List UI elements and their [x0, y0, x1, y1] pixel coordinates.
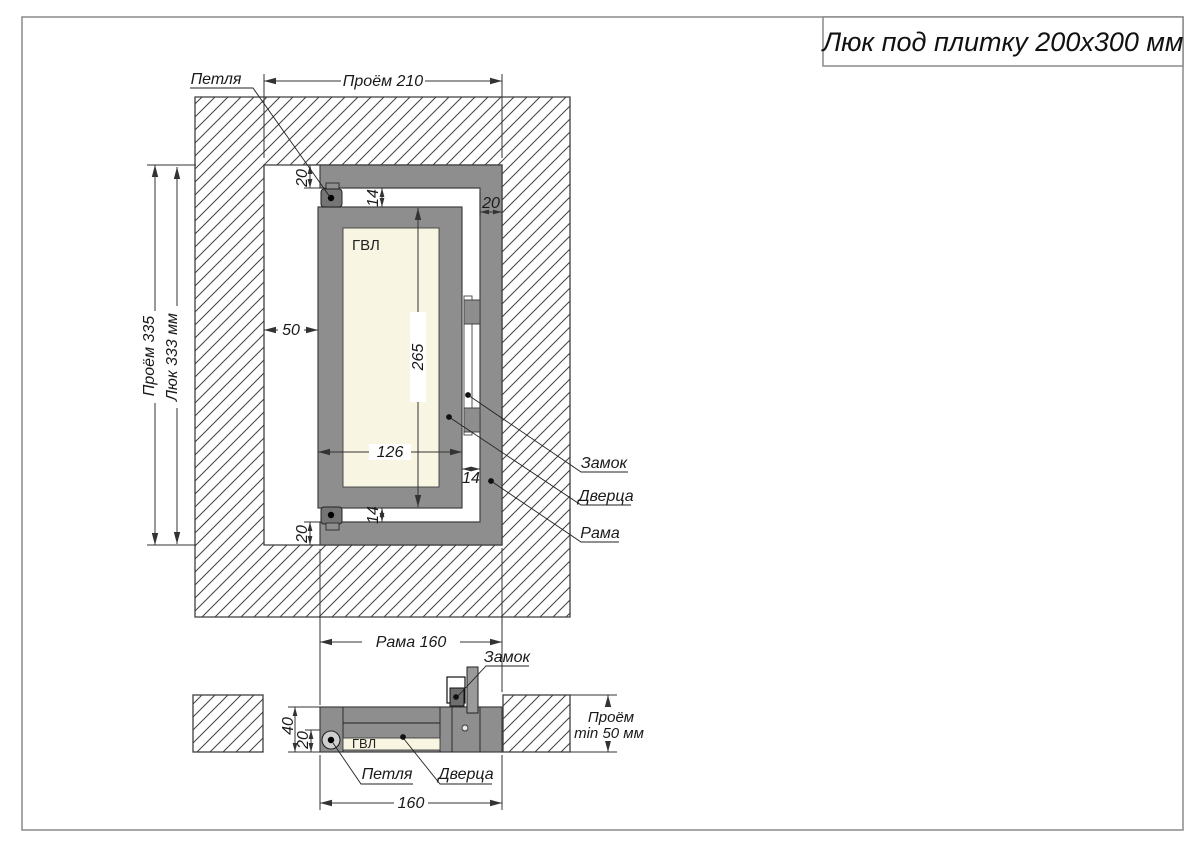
- section-hinge-label: Петля: [362, 766, 413, 783]
- page-title: Люк под плитку 200х300 мм: [821, 27, 1184, 57]
- section-lock-label: Замок: [484, 649, 532, 666]
- dim-frame-right: 20: [481, 195, 500, 212]
- dim-frame-width: Рама 160: [376, 634, 447, 651]
- section-wall-left: [193, 695, 263, 752]
- frame-label: Рама: [580, 525, 620, 542]
- section-door-label: Дверца: [436, 766, 493, 783]
- front-view: ГВЛ: [140, 71, 634, 705]
- section-screw-hole: [462, 725, 468, 731]
- technical-drawing: Люк под плитку 200х300 мм ГВЛ: [0, 0, 1200, 848]
- drawing-page: Люк под плитку 200х300 мм ГВЛ: [0, 0, 1200, 848]
- dim-opening-width: Проём 210: [343, 73, 424, 90]
- dim-gap-top: 14: [365, 189, 382, 207]
- dim-gap-left: 50: [282, 322, 300, 339]
- dim-door-width: 126: [377, 444, 404, 461]
- dim-hatch-height: Люк 333 мм: [164, 313, 181, 402]
- lock-label: Замок: [581, 455, 629, 472]
- section-gvl-label: ГВЛ: [352, 736, 376, 751]
- hinge-bottom-pin: [328, 512, 334, 518]
- dim-opening-depth-line1: Проём: [588, 709, 634, 726]
- door-label: Дверца: [576, 488, 633, 505]
- hinge-label: Петля: [191, 71, 242, 88]
- dim-frame-top: 20: [294, 169, 311, 188]
- dim-gap-right: 14: [462, 470, 480, 487]
- dim-frame-bottom: 20: [294, 525, 311, 544]
- section-hinge-pin: [328, 737, 334, 743]
- section-wall-right: [503, 695, 570, 752]
- gvl-label: ГВЛ: [352, 237, 380, 254]
- dim-opening-height: Проём 335: [141, 316, 158, 397]
- dim-section-frame-width: 160: [398, 795, 425, 812]
- dim-depth-front: 20: [295, 731, 312, 750]
- dim-gap-bottom: 14: [365, 506, 382, 524]
- dim-opening-depth-line2: min 50 мм: [574, 725, 644, 742]
- dim-door-height: 265: [410, 344, 427, 372]
